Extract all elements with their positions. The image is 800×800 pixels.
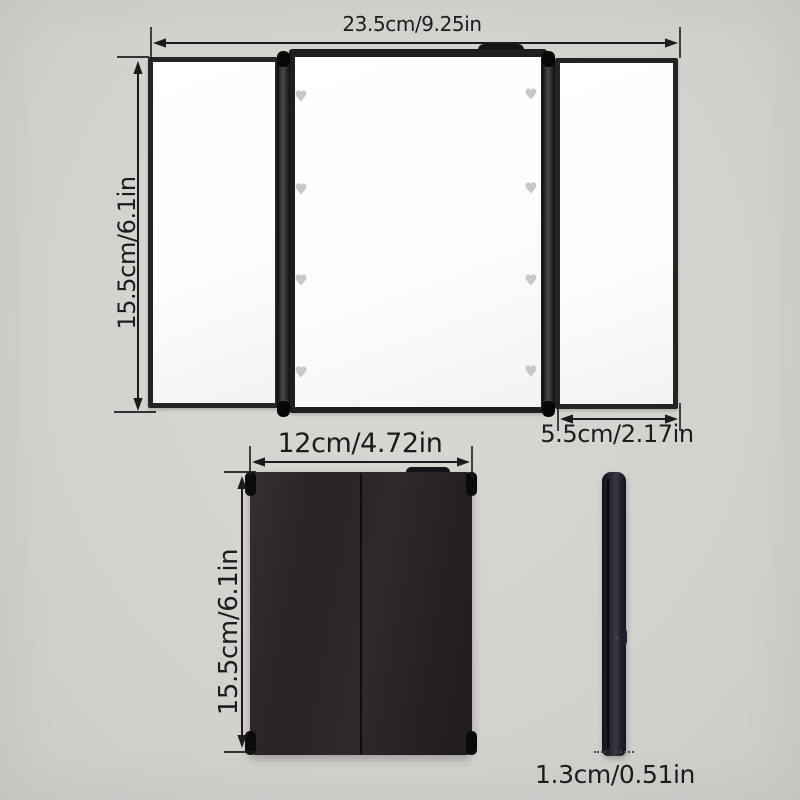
dimension-label-folded-height: 15.5cm/6.1in [214, 549, 244, 716]
dimension-label-open-height: 15.5cm/6.1in [113, 176, 141, 329]
product-dimension-diagram: ♥ ♥ ♥ ♥ ♥ ♥ ♥ ♥ [0, 0, 800, 800]
dimension-label-side-panel-width: 5.5cm/2.17in [507, 420, 727, 448]
dimension-lines-layer [0, 0, 800, 800]
dimension-label-open-width: 23.5cm/9.25in [302, 12, 522, 36]
dimension-label-thickness: 1.3cm/0.51in [505, 760, 725, 789]
dimension-label-folded-width: 12cm/4.72in [250, 428, 470, 459]
